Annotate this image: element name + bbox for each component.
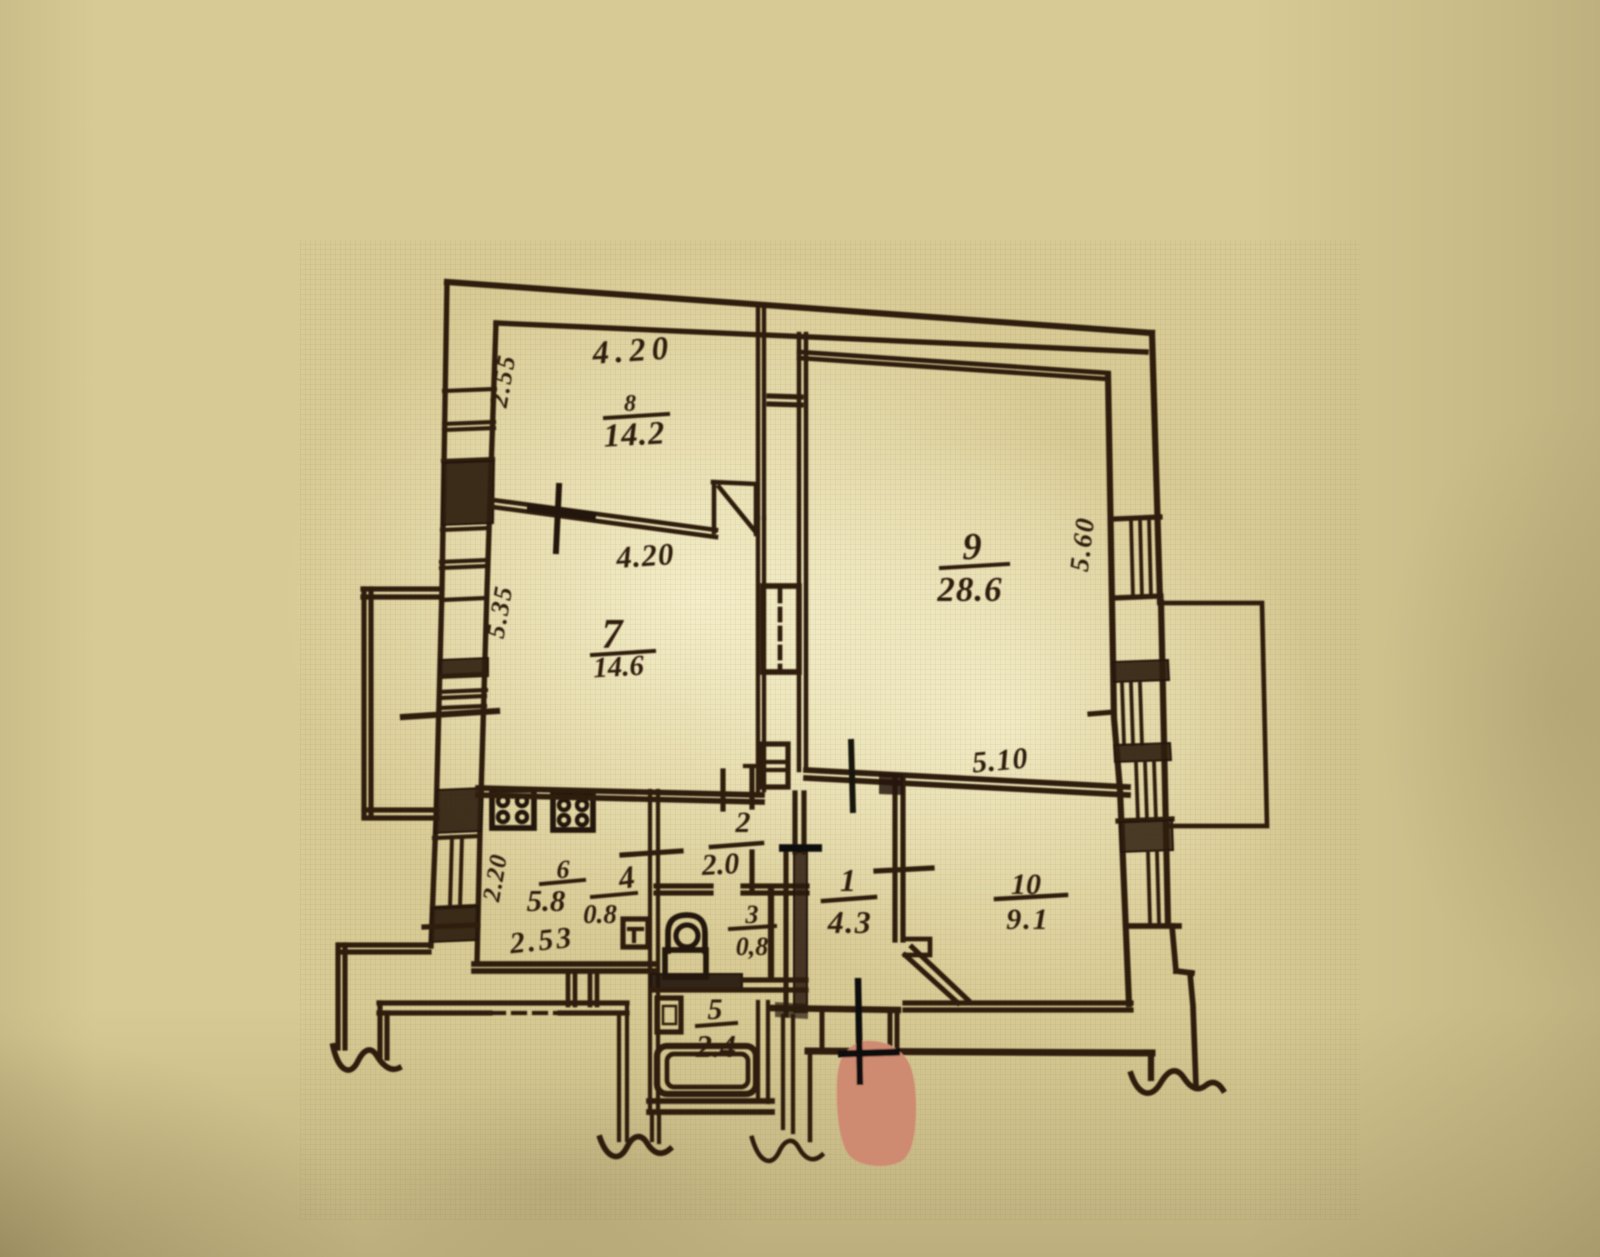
svg-text:8: 8 [624, 391, 636, 417]
svg-text:4: 4 [615, 858, 637, 896]
svg-text:5.10: 5.10 [971, 742, 1030, 780]
svg-text:28.6: 28.6 [936, 570, 1002, 609]
svg-text:14.6: 14.6 [592, 650, 645, 685]
svg-text:2.4: 2.4 [695, 1028, 736, 1064]
svg-text:14.2: 14.2 [603, 415, 667, 454]
svg-text:9: 9 [963, 526, 982, 568]
svg-text:5.8: 5.8 [527, 883, 566, 918]
svg-text:2.20: 2.20 [478, 852, 513, 905]
svg-text:4.20: 4.20 [614, 536, 676, 575]
svg-text:2.55: 2.55 [484, 352, 522, 411]
svg-text:4.3: 4.3 [827, 904, 873, 940]
svg-text:2: 2 [735, 806, 751, 839]
svg-text:4.20: 4.20 [590, 330, 675, 372]
svg-text:0,8: 0,8 [736, 932, 769, 961]
svg-text:0.8: 0.8 [583, 899, 617, 929]
svg-text:5.60: 5.60 [1064, 515, 1101, 573]
svg-text:1: 1 [840, 862, 856, 898]
svg-text:3: 3 [745, 900, 759, 929]
svg-text:2.53: 2.53 [507, 921, 576, 961]
svg-text:5: 5 [708, 993, 723, 1026]
svg-text:9.1: 9.1 [1006, 903, 1050, 936]
svg-text:2.0: 2.0 [700, 847, 740, 882]
